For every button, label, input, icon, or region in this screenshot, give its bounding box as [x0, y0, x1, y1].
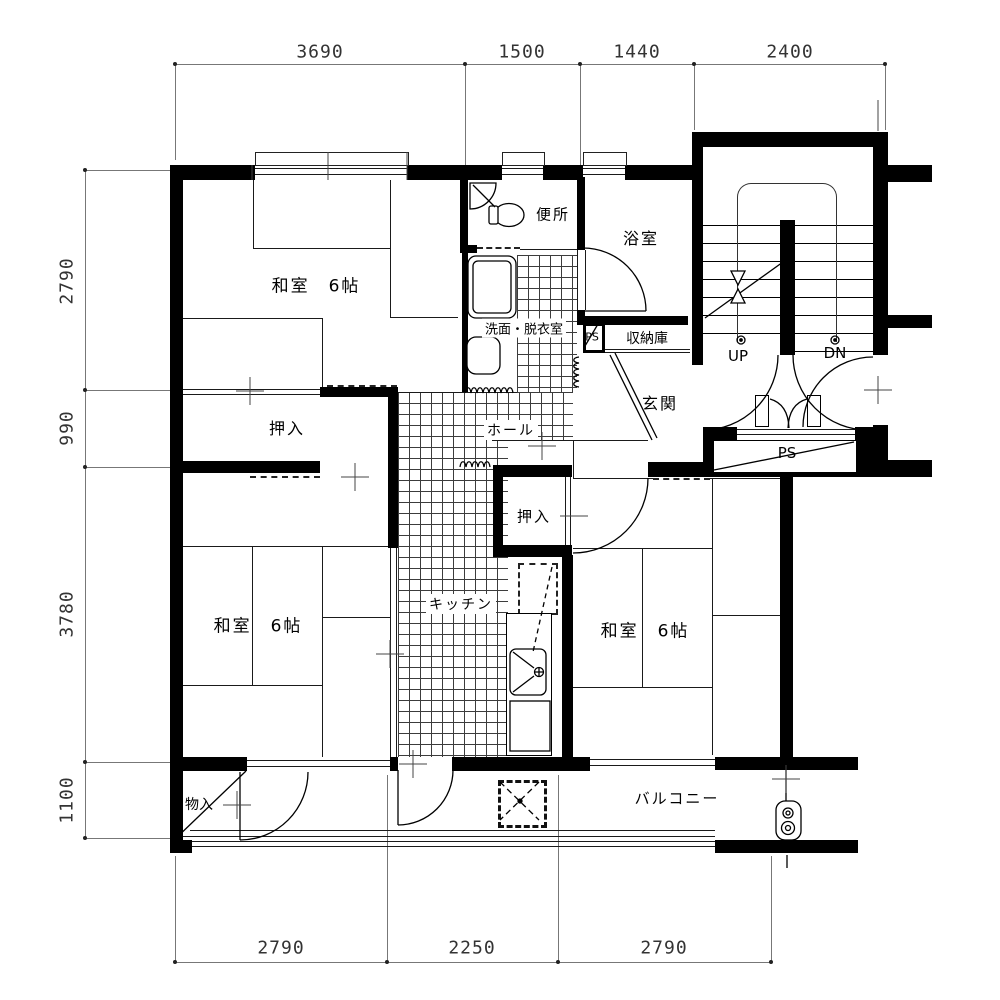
- curtain-coil-washroom: [574, 357, 579, 387]
- dim-tick: [83, 760, 87, 764]
- dim-left-4: 1100: [57, 776, 78, 823]
- dim-bottom-3: 2790: [640, 938, 687, 959]
- washing-machine: [468, 256, 516, 318]
- room-label-genkan: 玄関: [642, 390, 678, 414]
- room-label-hall: ホール: [484, 420, 538, 440]
- room-label-washitsu-bottom-right: 和室 6帖: [601, 617, 690, 642]
- dim-tick: [173, 960, 177, 964]
- stair-break-symbol: [731, 271, 745, 303]
- dim-tick: [83, 465, 87, 469]
- dim-tick: [883, 62, 887, 66]
- floor-plan: 和室 6帖 和室 6帖 和室 6帖 押入 押入 便所 浴室 洗面・脱衣室 PS …: [0, 0, 1000, 1000]
- room-label-storage: 収納庫: [626, 328, 668, 348]
- dim-top-3: 1440: [613, 42, 660, 63]
- dim-left-1: 2790: [57, 257, 78, 304]
- balcony-door-arc: [398, 770, 453, 825]
- vanity-sink: [467, 337, 500, 374]
- dim-tick: [83, 836, 87, 840]
- dim-top-4: 2400: [766, 42, 813, 63]
- room-label-washitsu-bottom-left: 和室 6帖: [214, 612, 303, 637]
- dim-tick: [463, 62, 467, 66]
- dim-left-2: 990: [57, 410, 78, 446]
- dim-tick: [385, 960, 389, 964]
- dim-bottom-2: 2250: [448, 938, 495, 959]
- toilet-corner-sink: [470, 183, 496, 209]
- room-label-monoire: 物入: [185, 794, 213, 814]
- neighbor-entry-door-arc: [793, 355, 868, 430]
- entrance-small-arch-left: [770, 399, 789, 428]
- room-label-kitchen: キッチン: [426, 594, 496, 614]
- label-stairs-down: DN: [824, 344, 847, 362]
- dim-top-1: 3690: [296, 42, 343, 63]
- unit-entry-door-arc: [703, 355, 778, 430]
- label-ps-small: PS: [585, 331, 599, 344]
- room-label-toilet: 便所: [536, 204, 570, 225]
- dim-tick: [692, 62, 696, 66]
- dim-tick: [83, 388, 87, 392]
- stair-exit-door-arc: [803, 357, 873, 427]
- room-label-washitsu-top: 和室 6帖: [272, 272, 361, 297]
- dim-left-3: 3780: [57, 590, 78, 637]
- kitchen-cabinet: [510, 701, 550, 751]
- room-label-washroom: 洗面・脱衣室: [482, 319, 566, 338]
- dim-tick: [578, 62, 582, 66]
- dim-top-2: 1500: [498, 42, 545, 63]
- bath-door-arc: [583, 248, 646, 311]
- monoire-door-arc: [240, 772, 308, 840]
- refrigerator-diagonal: [533, 567, 552, 652]
- room-label-oshiire-left: 押入: [269, 415, 305, 439]
- room-label-oshiire-center: 押入: [517, 506, 551, 527]
- room-label-balcony: バルコニー: [635, 788, 720, 809]
- plan-linework: [0, 0, 1000, 1000]
- dim-tick: [769, 960, 773, 964]
- dim-tick: [173, 62, 177, 66]
- curtain-coil-corridor: [460, 462, 490, 467]
- label-stairs-up: UP: [728, 347, 748, 365]
- dim-tick: [83, 168, 87, 172]
- dim-tick: [556, 960, 560, 964]
- label-ps-shaft: PS: [778, 444, 797, 462]
- room-label-bath: 浴室: [623, 225, 659, 249]
- dim-bottom-1: 2790: [257, 938, 304, 959]
- toilet-tank: [489, 206, 498, 224]
- curtain-coil-hall: [465, 388, 513, 393]
